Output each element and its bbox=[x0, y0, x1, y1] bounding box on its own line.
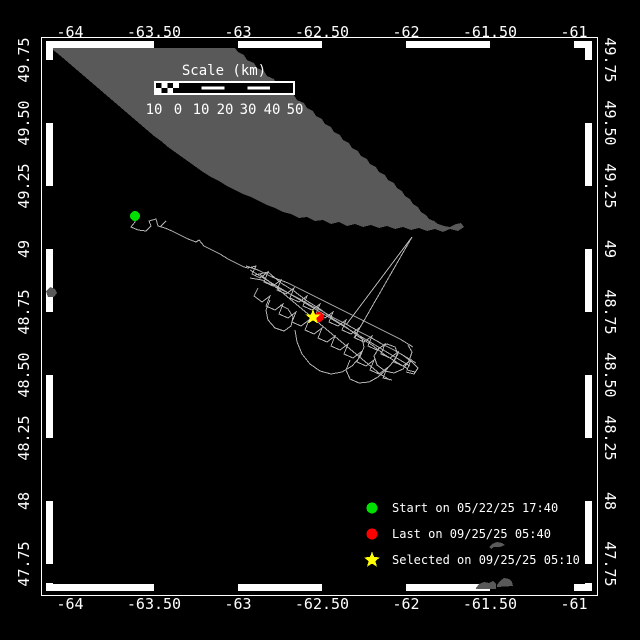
map-canvas bbox=[0, 0, 640, 640]
legend-label: Start on 05/22/25 17:40 bbox=[392, 501, 558, 515]
frame-tick-segment bbox=[585, 438, 592, 501]
frame-tick-segment bbox=[46, 312, 53, 375]
legend-marker-star bbox=[364, 552, 380, 567]
axis-label-bottom: -63.50 bbox=[114, 596, 194, 612]
scalebar-stripe bbox=[247, 87, 270, 90]
axis-label-right: 47.75 bbox=[602, 524, 618, 604]
legend-marker-dot bbox=[367, 529, 378, 540]
scalebar-checker-cell bbox=[162, 88, 168, 93]
axis-label-bottom: -63 bbox=[198, 596, 278, 612]
scalebar-checker-cell bbox=[167, 83, 173, 88]
scalebar-segment bbox=[270, 83, 293, 93]
scalebar-number: 10 bbox=[193, 103, 210, 117]
axis-label-top: -62.50 bbox=[282, 24, 362, 40]
track-line bbox=[260, 274, 390, 380]
frame-tick-segment bbox=[322, 41, 406, 48]
track-line bbox=[250, 278, 416, 363]
frame-tick-segment bbox=[585, 564, 592, 583]
axis-label-top: -63 bbox=[198, 24, 278, 40]
axis-label-top: -63.50 bbox=[114, 24, 194, 40]
track-line bbox=[266, 300, 293, 331]
frame-tick-segment bbox=[585, 60, 592, 123]
axis-label-left: 47.75 bbox=[16, 524, 32, 604]
legend-marker-dot bbox=[367, 503, 378, 514]
frame-tick-segment bbox=[46, 564, 53, 583]
islet bbox=[489, 542, 505, 549]
frame-tick-segment bbox=[46, 186, 53, 249]
scalebar-stripe bbox=[202, 87, 225, 90]
frame-tick-segment bbox=[154, 41, 238, 48]
frame-tick-segment bbox=[154, 584, 238, 591]
frame-tick-segment bbox=[46, 438, 53, 501]
scalebar-number: 40 bbox=[264, 103, 281, 117]
track-line bbox=[250, 270, 410, 366]
track-line bbox=[346, 237, 412, 338]
scalebar-number: 20 bbox=[217, 103, 234, 117]
axis-label-top: -62 bbox=[366, 24, 446, 40]
scalebar-number: 10 bbox=[146, 103, 163, 117]
frame-tick-segment bbox=[490, 41, 574, 48]
scalebar-segment bbox=[179, 83, 202, 93]
axis-label-bottom: -64 bbox=[30, 596, 110, 612]
legend-label: Last on 09/25/25 05:40 bbox=[392, 527, 551, 541]
axis-label-top: -61.50 bbox=[450, 24, 530, 40]
islet bbox=[497, 578, 513, 587]
frame-tick-segment bbox=[585, 312, 592, 375]
axis-label-top: -64 bbox=[30, 24, 110, 40]
axis-label-bottom: -62 bbox=[366, 596, 446, 612]
scalebar-segment bbox=[225, 83, 248, 93]
scalebar-checker-cell bbox=[173, 88, 179, 93]
frame-tick-segment bbox=[322, 584, 406, 591]
scalebar-number: 30 bbox=[240, 103, 257, 117]
scalebar-checker-cell bbox=[156, 83, 162, 88]
start-position-dot bbox=[130, 211, 140, 221]
legend-label: Selected on 09/25/25 05:10 bbox=[392, 553, 580, 567]
tracking-map-screen: -64-63.50-63-62.50-62-61.50-61-64-63.50-… bbox=[0, 0, 640, 640]
axis-label-bottom: -62.50 bbox=[282, 596, 362, 612]
track-line bbox=[131, 216, 248, 268]
scalebar-title: Scale (km) bbox=[182, 64, 266, 78]
scalebar-number: 50 bbox=[287, 103, 304, 117]
frame-tick-segment bbox=[46, 60, 53, 123]
islet bbox=[476, 581, 496, 589]
track-line bbox=[160, 221, 166, 227]
axis-label-bottom: -61.50 bbox=[450, 596, 530, 612]
frame-tick-segment bbox=[585, 186, 592, 249]
scalebar-number: 0 bbox=[174, 103, 182, 117]
